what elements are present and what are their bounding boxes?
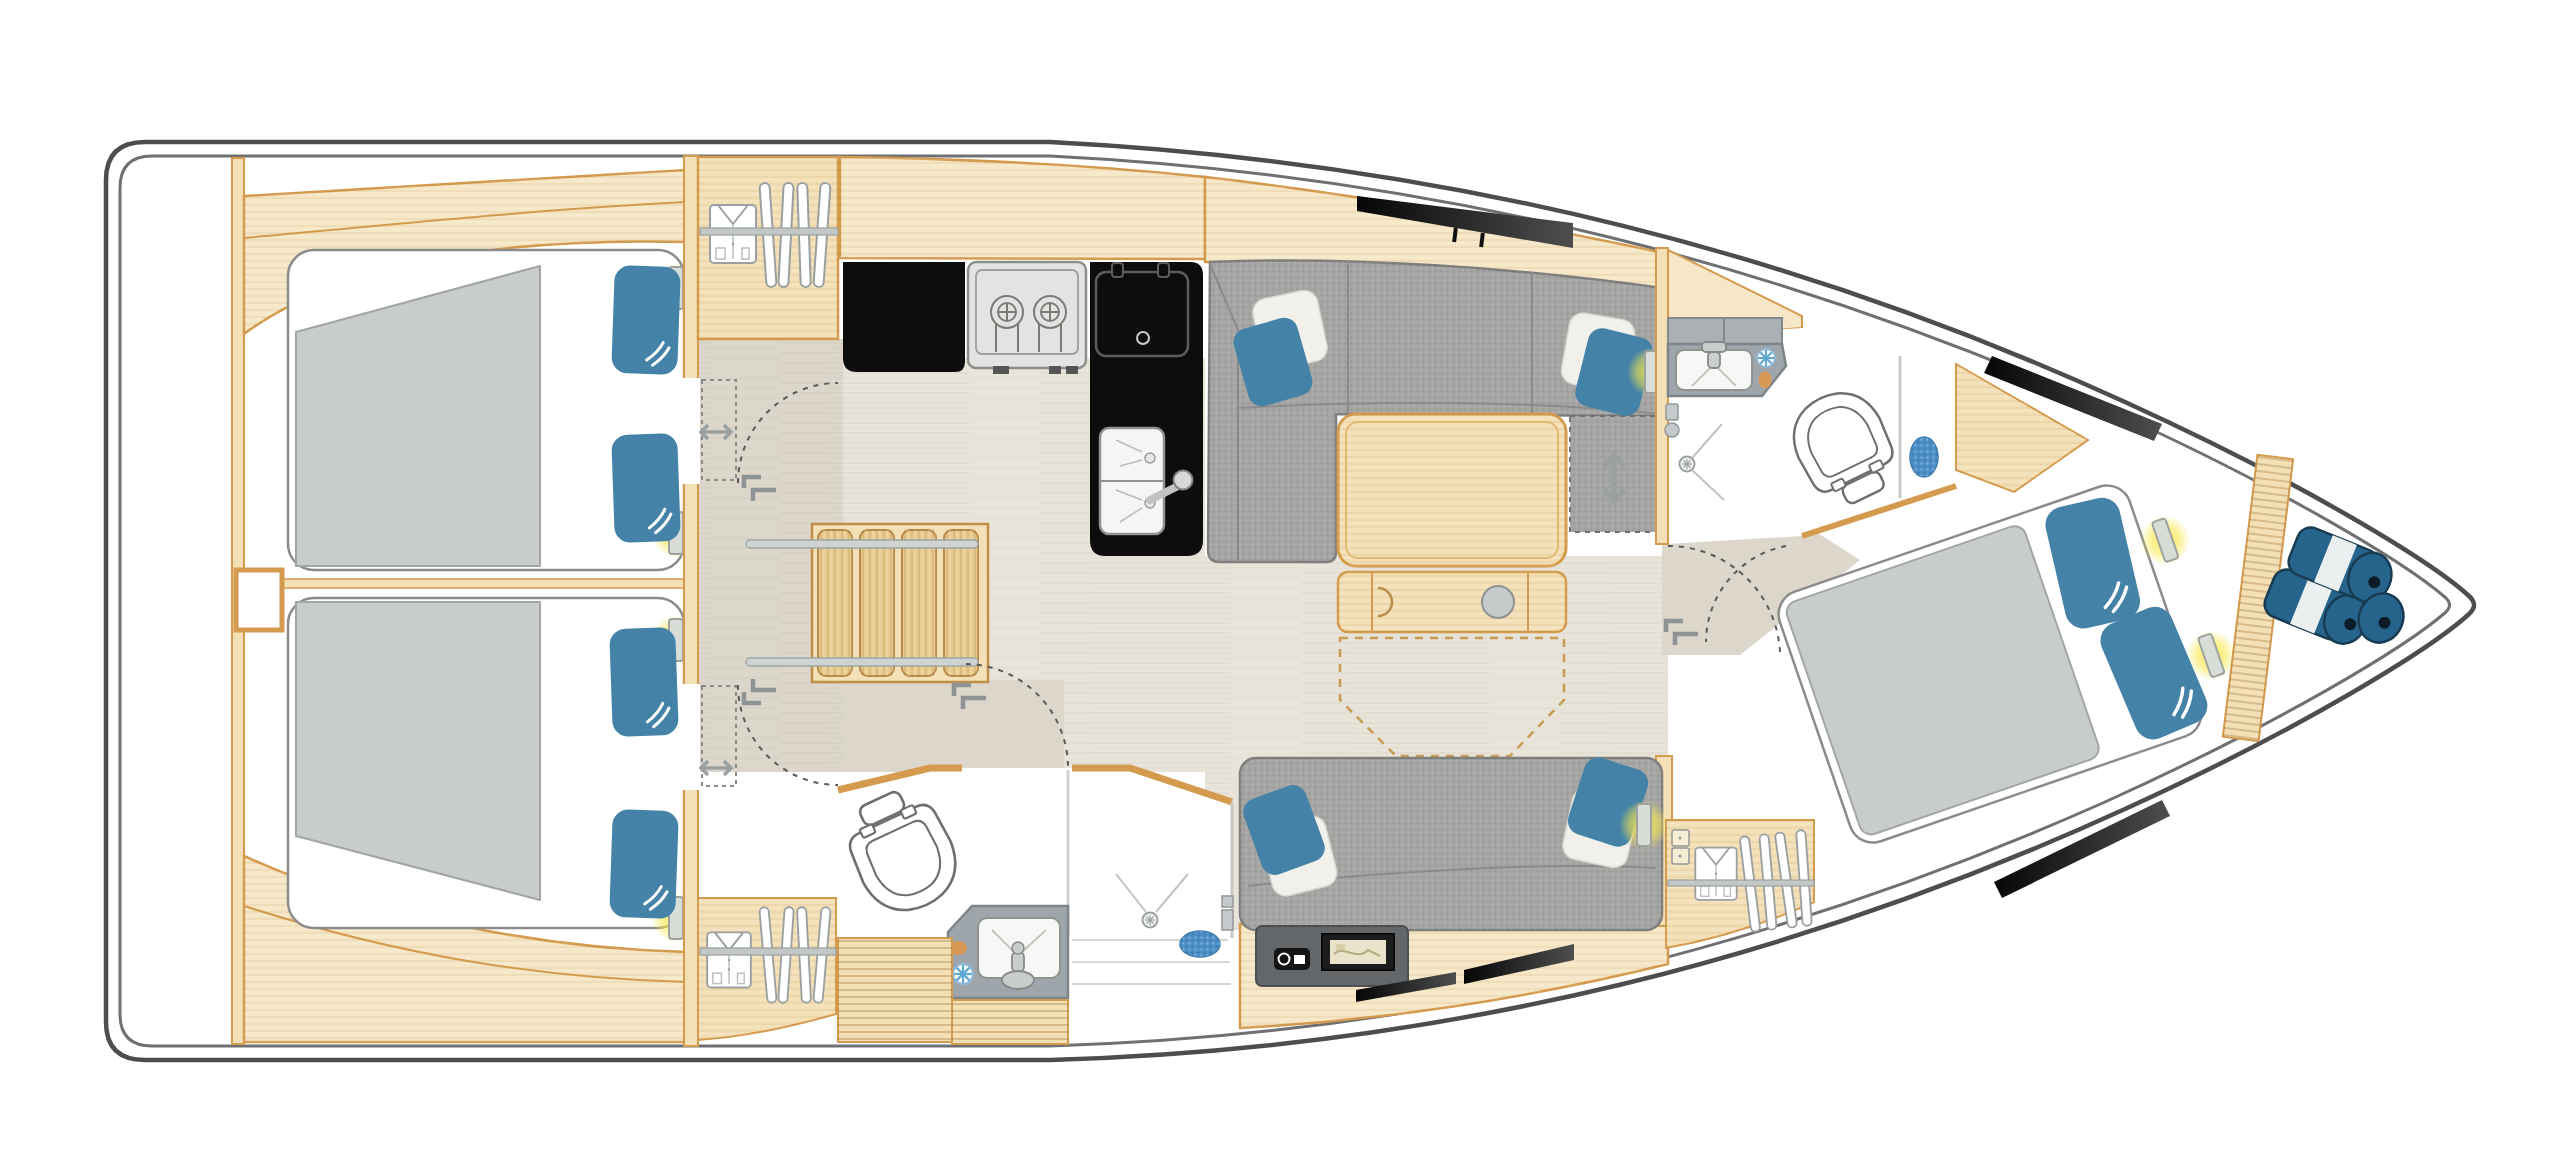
pillow-blue (611, 265, 681, 375)
stove-knob (1049, 366, 1061, 374)
cabin-divider-wall (242, 579, 686, 588)
fridge-hinge (1158, 263, 1169, 277)
yacht-floor-plan-page (0, 0, 2560, 1169)
handrail (746, 658, 978, 666)
reading-light-icon (1619, 800, 1669, 850)
pillow-blue (609, 627, 679, 737)
pillow-blue (611, 433, 681, 543)
floor-plan (0, 0, 2560, 1169)
tap-head (1702, 342, 1726, 352)
drain-icon (1145, 453, 1155, 463)
drain-icon (1680, 457, 1695, 472)
hanger-rail (700, 228, 838, 235)
drawer-knob (1679, 855, 1682, 858)
plotter-map-land (1336, 944, 1345, 950)
bulkhead-wall (684, 156, 698, 1046)
stove-knob (993, 366, 1009, 374)
between-cabin-locker (236, 570, 282, 630)
fwd-head-wall (1656, 248, 1668, 544)
galley-counter-left (843, 262, 965, 372)
tap-spout (1708, 352, 1720, 368)
port-door-opening (682, 378, 700, 484)
shirt-icon (1695, 848, 1736, 900)
tap-head (1012, 942, 1024, 954)
vent-fan-icon (1757, 349, 1775, 367)
bath-mat-texture (1180, 931, 1220, 957)
stove-body (968, 262, 1086, 368)
aft-locker-slats (952, 1000, 1068, 1044)
hanger-rail (1668, 880, 1814, 886)
aft-port-cabin (288, 250, 701, 570)
handrail (746, 540, 978, 548)
soap-icon (1759, 372, 1772, 389)
vent-fan-icon (953, 964, 973, 984)
hanger-rail (700, 948, 836, 955)
pillow-blue (609, 809, 679, 919)
aft-locker-slats (838, 938, 952, 1042)
cup-holder-icon (1482, 586, 1514, 618)
shirt-icon (707, 932, 751, 987)
drain-icon (1143, 913, 1158, 928)
galley-lockers-grain (840, 157, 1205, 259)
drawer-knob (1679, 837, 1682, 840)
stove (968, 262, 1086, 374)
toiletry-item (1666, 404, 1678, 420)
tap-spout (1012, 952, 1024, 972)
nav-panel (1256, 926, 1408, 986)
radio-display (1294, 955, 1305, 964)
starboard-door-opening (682, 684, 700, 790)
table-grain (1338, 414, 1566, 566)
toiletry-item (1665, 423, 1679, 437)
stove-knob (1066, 366, 1078, 374)
fridge-hinge (1112, 263, 1123, 277)
toiletry-item (1222, 910, 1233, 930)
toiletry-item (1222, 896, 1233, 907)
tap-knob (1174, 471, 1193, 490)
tap-base (1002, 971, 1034, 989)
bath-mat-texture (1910, 437, 1938, 477)
aft-starboard-cabin (288, 598, 701, 943)
